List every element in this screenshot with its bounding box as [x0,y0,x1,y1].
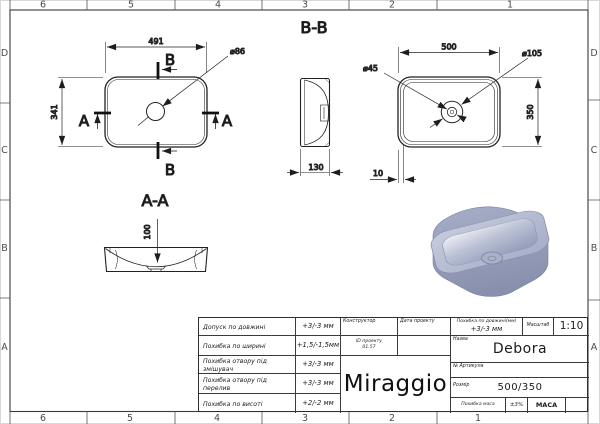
zone-col-top-3: 3 [302,0,308,11]
article-label: № Артикула [453,365,484,370]
sink-3d-render [429,207,552,297]
section-aa-title: A-A [142,191,169,210]
mass-empty-cell [566,398,589,413]
section-view-bb: B-B 130 [287,18,343,176]
section-letter-b-bottom: B [165,161,175,179]
project-date-cell: Дата проекту [398,318,451,336]
article-cell: № Артикула [451,363,589,378]
constructor-cell: Конструктор [341,318,398,336]
mass-label-cell: МАСА [528,398,566,413]
zone-row-left-c: C [1,145,8,156]
dim-height-341: 341 [50,104,59,119]
name-label: Назва [453,338,468,343]
scale-value: 1:10 [560,321,584,332]
length-tolerance-cell: Похибка по довжині(мм) +3/-3 мм [451,318,523,336]
section-letter-a-right: A [222,112,233,130]
tolerance-value-1: +3/-3 мм [296,318,341,336]
tolerance-label-5: Похибка по висоті [199,394,296,413]
zone-row-right-b: B [591,243,598,254]
zone-row-right-c: C [591,145,598,156]
zone-row-left-d: D [1,48,8,59]
zone-col-top-5: 5 [128,0,134,11]
project-date-label: Дата проекту [400,320,435,325]
section-bb-title: B-B [300,18,327,37]
tolerance-value-3: +3/-3 мм [296,356,341,374]
dim-height-350: 350 [526,104,535,119]
tolerance-value-5: +2/-2 мм [296,394,341,413]
scale-label-cell: Масштаб [523,318,554,336]
dim-rim-10: 10 [373,169,383,178]
dim-width-130: 130 [308,163,323,172]
size-cell: Розмір 500/350 [451,378,589,398]
plan-view-right: ⌀105 ⌀45 500 350 10 [363,43,542,184]
size-value: 500/350 [497,383,542,393]
mass-tolerance-value: ±3% [510,403,523,409]
zone-col-bottom-4: 4 [214,413,220,424]
zone-row-right-a: A [591,342,598,353]
product-name: Debora [493,342,547,356]
dim-depth-100: 100 [143,224,152,239]
tolerance-value-2: +1,5/-1,5мм [296,336,341,356]
zone-col-top-6: 6 [40,0,46,11]
tolerance-label-4: Похибка отвору під перелив [199,374,296,394]
tolerance-label-3: Похибка отвору під змішувач [199,356,296,374]
tolerance-value-4: +3/-3 мм [296,374,341,394]
zone-row-left-b: B [1,243,8,254]
tolerance-label-1: Допуск по довжині [199,318,296,336]
section-view-aa: A-A 100 [105,191,208,272]
empty-cell [398,336,451,356]
length-tolerance-value: +3/-3 мм [471,326,503,333]
section-letter-a-left: A [79,112,90,130]
mass-tolerance-label-cell: Похибка маса [451,398,506,413]
mass-tolerance-label: Похибка маса [461,403,494,408]
dim-width-500: 500 [441,43,456,52]
scale-value-cell: 1:10 [554,318,589,336]
zone-row-right-d: D [590,48,597,59]
scale-label: Масштаб [527,324,550,329]
sink-drain [482,252,503,264]
drawing-sheet: 6 5 4 3 2 1 6 5 4 3 2 1 D C B A D C B A … [0,0,600,424]
project-id-cell: ID проекту 01.57 [341,336,398,356]
zone-col-bottom-1: 1 [475,413,481,424]
zone-col-bottom-3: 3 [302,413,308,424]
brand-cell: Miraggio [341,356,451,413]
zone-col-top-2: 2 [389,0,395,11]
title-block: Допуск по довжині +3/-3 мм Похибка по ши… [198,317,588,412]
zone-col-top-4: 4 [215,0,221,11]
zone-col-bottom-5: 5 [127,413,133,424]
dim-hole-105: ⌀105 [522,49,542,58]
mass-tolerance-value-cell: ±3% [506,398,528,413]
tolerance-label-2: Похибка по ширині [199,336,296,356]
dim-hole-86: ⌀86 [230,47,245,56]
zone-col-top-1: 1 [507,0,513,11]
project-id-value: 01.57 [362,346,375,351]
zone-col-bottom-6: 6 [40,413,46,424]
brand-logo-text: Miraggio [344,373,447,396]
name-cell: Назва Debora [451,336,589,363]
zone-col-bottom-2: 2 [389,413,395,424]
constructor-label: Конструктор [343,320,375,325]
dim-hole-45: ⌀45 [363,64,378,73]
dim-width-491: 491 [148,37,163,46]
plan-view-left: ⌀86 491 341 B B A A [50,37,245,179]
section-letter-b-top: B [165,51,175,69]
mass-label: МАСА [536,402,557,409]
size-label: Розмір [453,384,469,389]
zone-row-left-a: A [1,342,8,353]
